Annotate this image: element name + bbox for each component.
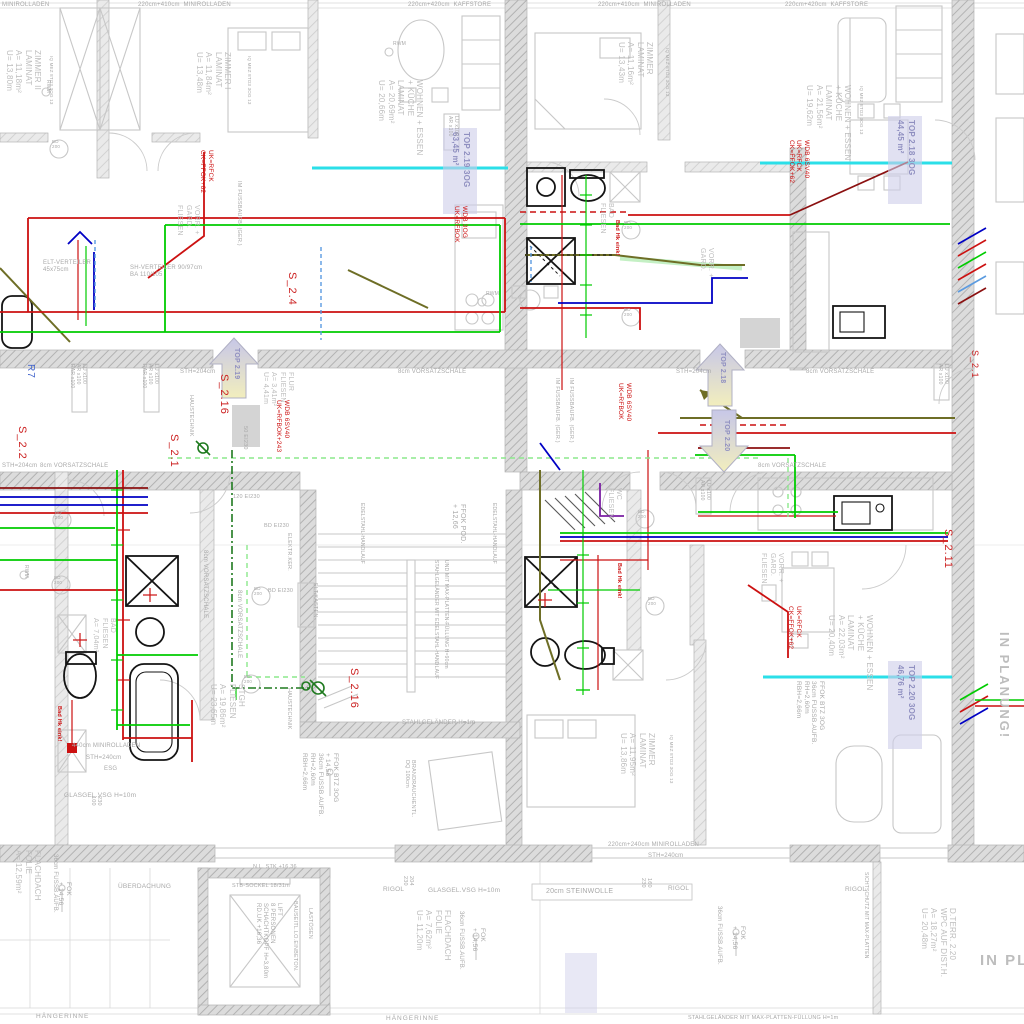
light-blue-dashed <box>95 240 531 340</box>
sanitary-fixtures <box>2 168 892 760</box>
floorplan-drawing <box>0 0 1024 1024</box>
wc-shading <box>545 492 615 530</box>
floorplan-canvas: MINIROLLADEN220cm+410cm MINIROLLADEN220c… <box>0 0 1024 1024</box>
red-pipes <box>0 152 956 762</box>
stairs <box>318 534 506 708</box>
